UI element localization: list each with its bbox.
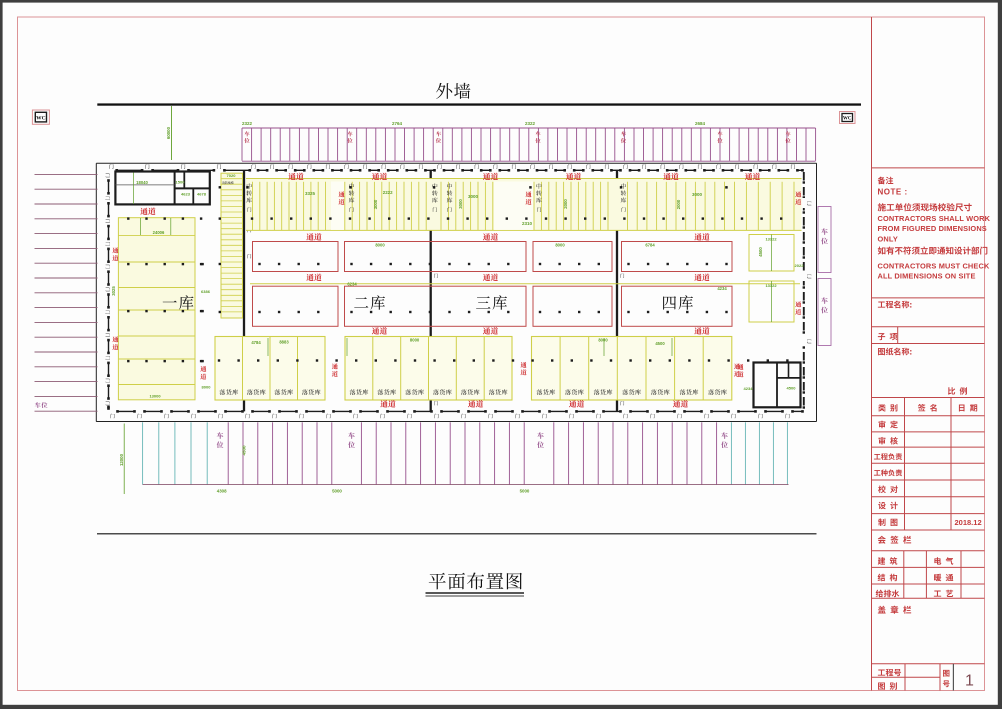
svg-text:13322: 13322 — [765, 283, 777, 288]
svg-text:4500: 4500 — [787, 386, 797, 391]
svg-text:8000: 8000 — [202, 385, 212, 390]
svg-text:13322: 13322 — [765, 237, 777, 242]
svg-text:4678: 4678 — [197, 192, 207, 197]
svg-text:2018.12: 2018.12 — [955, 518, 982, 527]
svg-text:8000: 8000 — [598, 338, 608, 343]
svg-text:12000: 12000 — [119, 453, 124, 466]
svg-text:2764: 2764 — [392, 121, 403, 126]
svg-text:1500: 1500 — [176, 180, 186, 185]
svg-text:4500: 4500 — [242, 445, 247, 456]
svg-text:3000: 3000 — [468, 194, 479, 199]
svg-text:2000: 2000 — [563, 199, 568, 209]
svg-text:13000: 13000 — [149, 394, 161, 399]
svg-text:3000: 3000 — [373, 199, 378, 209]
svg-text:FROM FIGURED DIMENSIONS: FROM FIGURED DIMENSIONS — [878, 224, 987, 233]
svg-text:6784: 6784 — [645, 243, 655, 248]
svg-text:4308: 4308 — [217, 489, 227, 494]
svg-text:CONTRACTORS SHALL WORK: CONTRACTORS SHALL WORK — [878, 214, 991, 223]
svg-text:3325: 3325 — [305, 191, 316, 196]
svg-text:2684: 2684 — [695, 121, 706, 126]
svg-text:8000: 8000 — [410, 338, 420, 343]
svg-text:2000: 2000 — [676, 199, 681, 209]
svg-text:18040: 18040 — [136, 180, 148, 185]
svg-text:4234: 4234 — [717, 286, 727, 291]
svg-text:1: 1 — [965, 673, 974, 690]
svg-text:4500: 4500 — [655, 341, 665, 346]
svg-text:8883: 8883 — [279, 340, 289, 345]
svg-text:WC: WC — [36, 115, 46, 121]
svg-text:24006: 24006 — [153, 230, 165, 235]
svg-text:6386: 6386 — [201, 289, 211, 294]
svg-text:2322: 2322 — [242, 121, 253, 126]
svg-text:7020: 7020 — [227, 173, 237, 178]
svg-text:ALL DIMENSIONS ON SITE: ALL DIMENSIONS ON SITE — [878, 271, 976, 280]
svg-text:3025: 3025 — [111, 286, 116, 296]
svg-text:4234: 4234 — [744, 386, 754, 391]
svg-text:8000: 8000 — [375, 243, 385, 248]
svg-text:2022: 2022 — [795, 263, 805, 268]
svg-text:2310: 2310 — [522, 221, 533, 226]
svg-text:4784: 4784 — [251, 340, 261, 345]
svg-text:CONTRACTORS MUST CHECK: CONTRACTORS MUST CHECK — [878, 261, 990, 270]
svg-text:2322: 2322 — [525, 121, 536, 126]
svg-text:6234: 6234 — [347, 282, 357, 287]
svg-text:NOTE :: NOTE : — [878, 188, 908, 197]
svg-text:WC: WC — [843, 117, 852, 122]
svg-text:2222: 2222 — [383, 190, 393, 195]
svg-text:8000: 8000 — [555, 243, 565, 248]
svg-text:4623: 4623 — [181, 192, 191, 197]
svg-text:ONLY: ONLY — [878, 234, 898, 243]
svg-text:60000: 60000 — [166, 126, 171, 139]
svg-text:4500: 4500 — [758, 247, 763, 257]
svg-text:5000: 5000 — [520, 489, 530, 494]
svg-text:3000: 3000 — [458, 199, 463, 209]
svg-text:3000: 3000 — [692, 192, 703, 197]
svg-text:5000: 5000 — [332, 489, 342, 494]
